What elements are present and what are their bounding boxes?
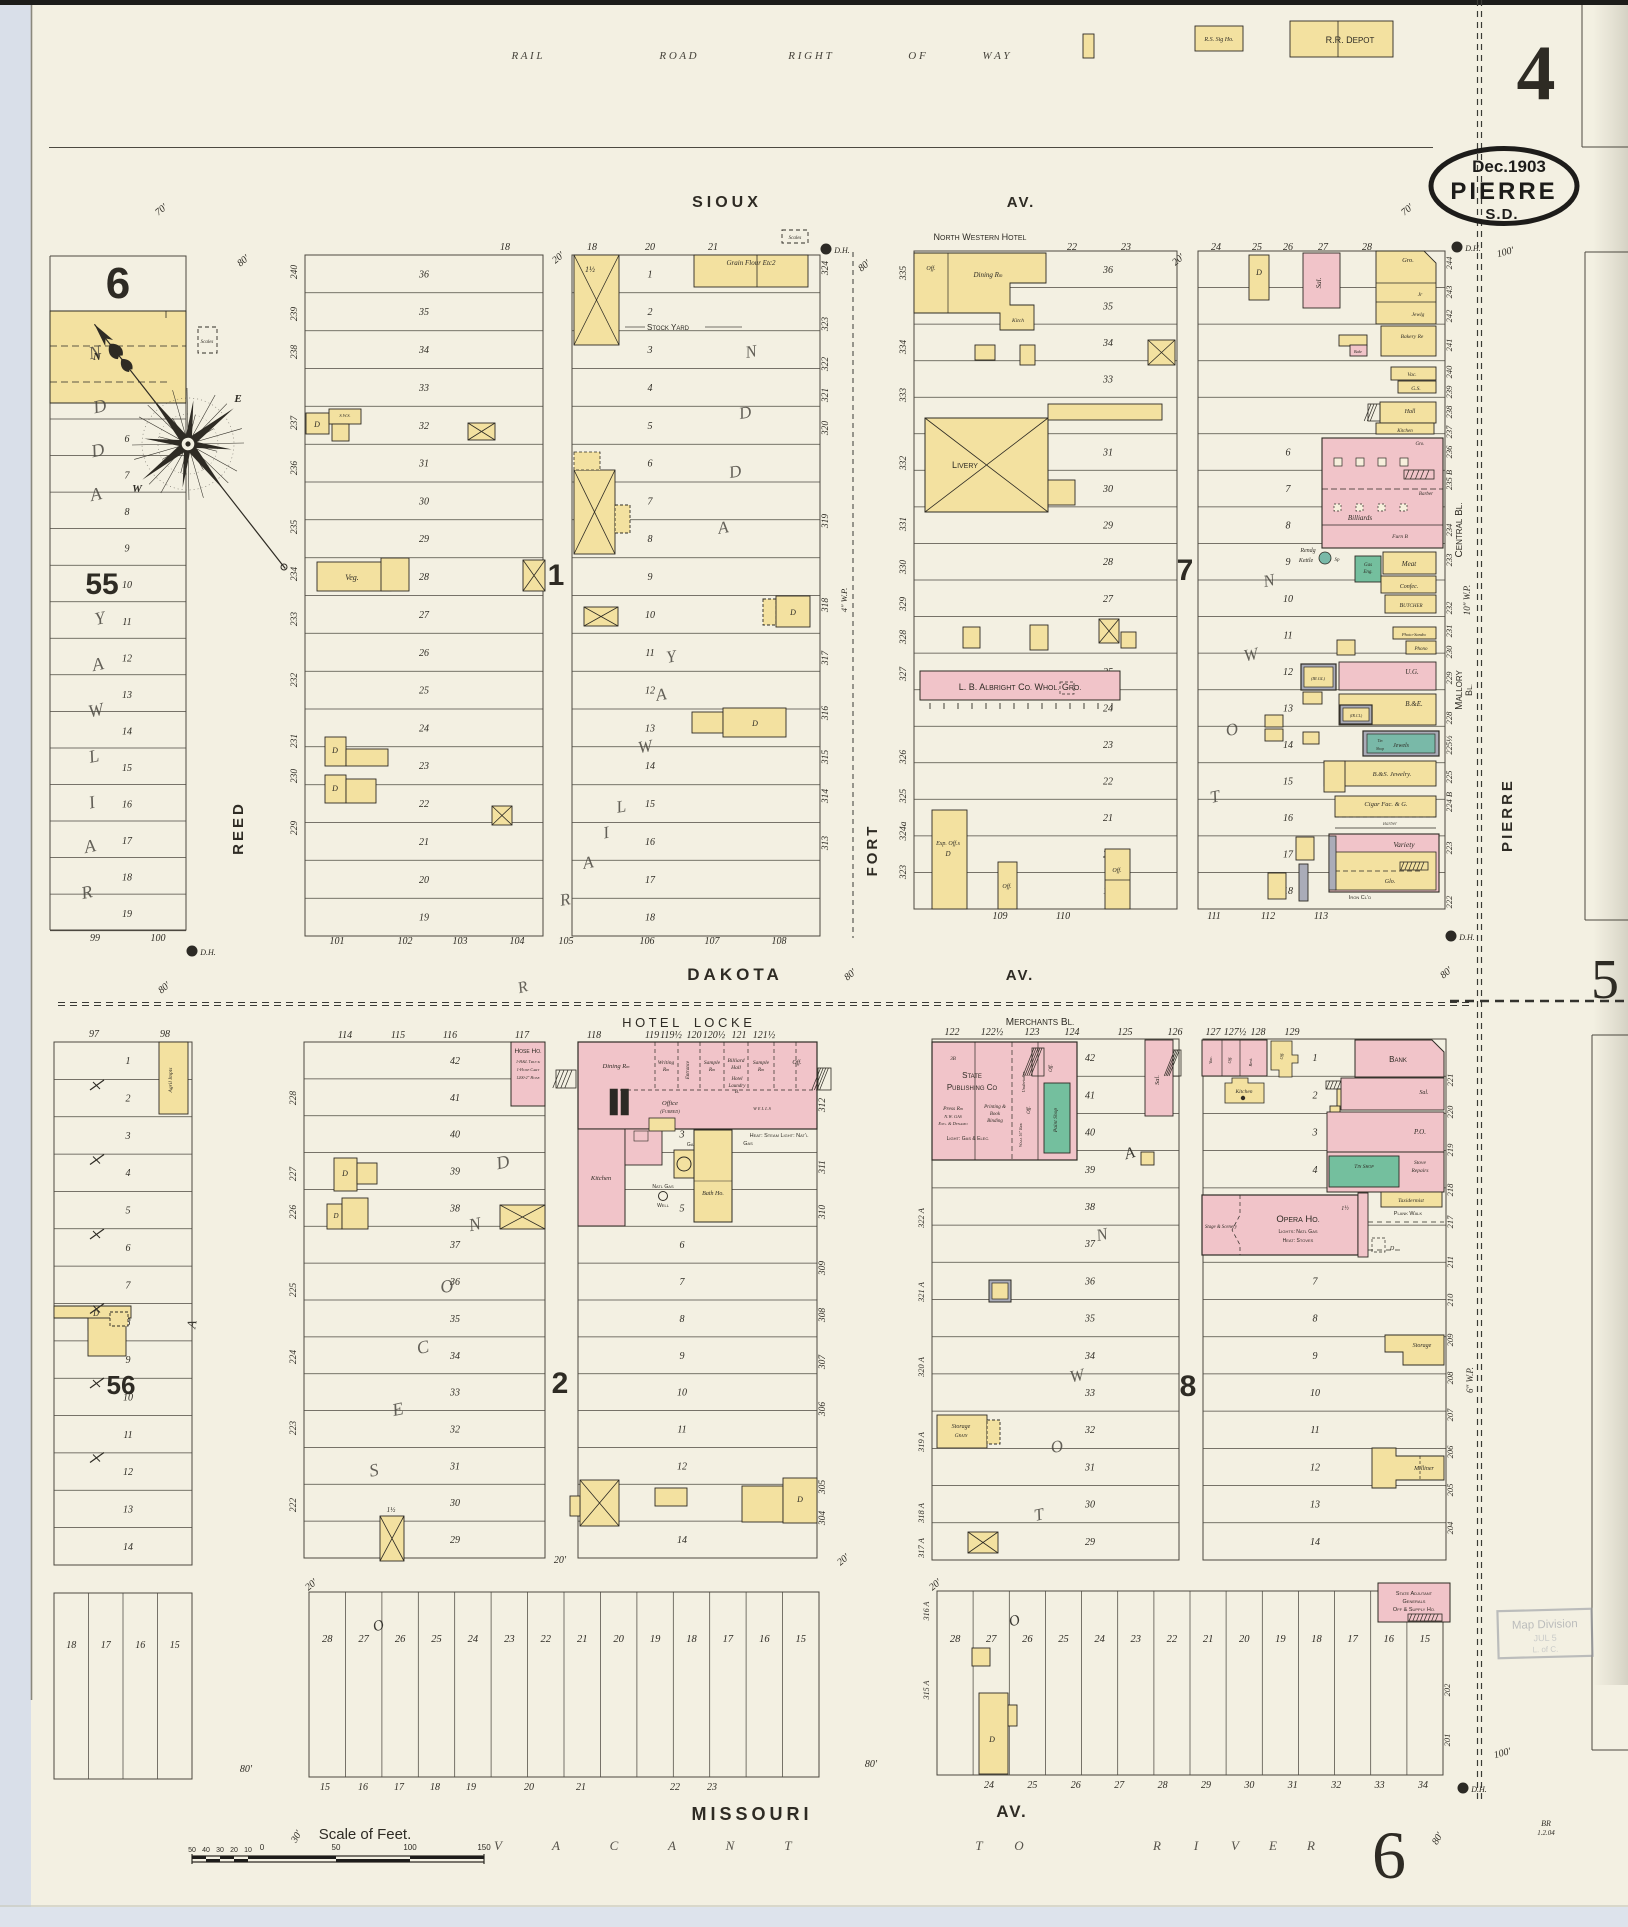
svg-text:Billiard: Billiard xyxy=(728,1058,745,1064)
svg-text:38: 38 xyxy=(449,1203,460,1214)
svg-text:16: 16 xyxy=(1384,1634,1395,1645)
svg-text:1: 1 xyxy=(648,269,653,280)
svg-text:D.H.: D.H. xyxy=(199,948,216,957)
svg-text:Writing: Writing xyxy=(658,1060,675,1066)
svg-text:29: 29 xyxy=(1201,1780,1211,1791)
svg-text:12: 12 xyxy=(123,1467,133,1478)
svg-text:306: 306 xyxy=(818,1402,828,1418)
svg-text:Furn B: Furn B xyxy=(1391,534,1408,540)
svg-text:Storage: Storage xyxy=(1413,1343,1432,1349)
svg-text:Variety: Variety xyxy=(1393,840,1415,849)
svg-text:23: 23 xyxy=(707,1782,717,1793)
svg-text:G.S.: G.S. xyxy=(1411,386,1420,392)
svg-text:W E L L S: W E L L S xyxy=(753,1106,772,1111)
svg-text:8: 8 xyxy=(1180,1370,1197,1403)
svg-text:(IR.CL): (IR.CL) xyxy=(1350,713,1363,718)
svg-text:13: 13 xyxy=(1310,1500,1320,1511)
svg-text:22: 22 xyxy=(1167,1634,1178,1645)
svg-text:223: 223 xyxy=(1444,842,1454,855)
svg-text:9: 9 xyxy=(680,1351,685,1362)
svg-text:Sample: Sample xyxy=(704,1060,721,1066)
svg-text:10: 10 xyxy=(1283,594,1293,605)
svg-text:225: 225 xyxy=(1444,771,1454,784)
svg-text:18: 18 xyxy=(500,242,510,253)
svg-text:FORT: FORT xyxy=(864,824,881,877)
svg-text:17: 17 xyxy=(101,1640,112,1651)
svg-text:15: 15 xyxy=(645,799,655,810)
svg-text:Meat: Meat xyxy=(1401,560,1417,568)
svg-text:N: N xyxy=(92,351,102,363)
svg-text:311: 311 xyxy=(818,1160,828,1175)
svg-text:125: 125 xyxy=(1118,1027,1133,1038)
svg-text:15: 15 xyxy=(122,763,132,774)
svg-text:4: 4 xyxy=(1517,29,1556,116)
svg-text:18: 18 xyxy=(430,1782,440,1793)
svg-text:21: 21 xyxy=(576,1782,586,1793)
svg-text:E: E xyxy=(1268,1838,1277,1853)
svg-text:330: 330 xyxy=(899,560,909,576)
svg-text:C: C xyxy=(610,1838,619,1853)
svg-text:20: 20 xyxy=(524,1782,534,1793)
svg-text:PIERRE: PIERRE xyxy=(1499,778,1516,852)
svg-text:99: 99 xyxy=(90,933,100,944)
svg-text:R: R xyxy=(1306,1838,1315,1853)
svg-text:106: 106 xyxy=(640,936,655,947)
svg-text:228: 228 xyxy=(289,1091,299,1106)
svg-text:30: 30 xyxy=(449,1498,460,1509)
svg-text:1: 1 xyxy=(1313,1053,1318,1064)
svg-text:16: 16 xyxy=(122,800,132,811)
svg-text:4: 4 xyxy=(648,383,653,394)
svg-text:Stove: Stove xyxy=(1414,1160,1426,1166)
svg-text:Dining Rm: Dining Rm xyxy=(602,1063,631,1070)
svg-text:232: 232 xyxy=(290,673,300,688)
svg-text:13: 13 xyxy=(123,1505,133,1516)
svg-text:228: 228 xyxy=(1444,711,1454,725)
svg-text:126: 126 xyxy=(1168,1027,1183,1038)
svg-text:Shop: Shop xyxy=(1376,746,1384,751)
svg-text:20: 20 xyxy=(230,1847,238,1854)
svg-text:Map Division: Map Division xyxy=(1512,1618,1578,1632)
svg-text:128: 128 xyxy=(1251,1027,1266,1038)
svg-text:13: 13 xyxy=(122,690,132,701)
svg-text:23: 23 xyxy=(419,761,429,772)
svg-text:B.&E.: B.&E. xyxy=(1405,700,1423,708)
svg-text:127: 127 xyxy=(1206,1027,1222,1038)
svg-text:211: 211 xyxy=(1445,1256,1455,1268)
svg-text:3: 3 xyxy=(679,1130,685,1141)
svg-text:R.S. Sig Ho.: R.S. Sig Ho. xyxy=(1203,37,1233,43)
svg-text:11: 11 xyxy=(122,617,131,628)
svg-text:204: 204 xyxy=(1445,1521,1455,1535)
svg-text:1200-2″ HOSE: 1200-2″ HOSE xyxy=(516,1075,540,1080)
svg-text:Off.: Off. xyxy=(1002,883,1011,890)
svg-text:122½: 122½ xyxy=(981,1027,1004,1038)
svg-text:Vac.: Vac. xyxy=(1407,372,1416,378)
svg-text:16: 16 xyxy=(358,1782,368,1793)
svg-text:JUL 5: JUL 5 xyxy=(1533,1633,1556,1644)
svg-text:202: 202 xyxy=(1442,1683,1452,1697)
svg-text:109: 109 xyxy=(993,911,1008,922)
svg-text:29: 29 xyxy=(1103,521,1113,532)
svg-text:335: 335 xyxy=(899,266,909,282)
svg-text:227: 227 xyxy=(289,1166,299,1182)
svg-text:217: 217 xyxy=(1445,1215,1455,1229)
svg-text:33: 33 xyxy=(449,1388,460,1399)
svg-text:Billiards: Billiards xyxy=(1348,514,1373,522)
svg-text:B.&S. Jewelry.: B.&S. Jewelry. xyxy=(1373,771,1412,778)
svg-text:244: 244 xyxy=(1444,256,1454,270)
svg-text:127½: 127½ xyxy=(1224,1027,1247,1038)
svg-text:10: 10 xyxy=(677,1388,687,1399)
svg-text:E: E xyxy=(233,393,241,405)
svg-text:40: 40 xyxy=(1085,1128,1095,1139)
svg-text:314: 314 xyxy=(821,789,831,805)
svg-text:Binding: Binding xyxy=(987,1119,1003,1124)
svg-text:29: 29 xyxy=(450,1535,460,1546)
svg-text:328: 328 xyxy=(899,630,909,646)
svg-text:R: R xyxy=(1152,1838,1161,1853)
svg-text:32: 32 xyxy=(1330,1780,1341,1791)
svg-text:21: 21 xyxy=(419,837,429,848)
svg-text:AV.: AV. xyxy=(996,1802,1028,1821)
svg-text:13: 13 xyxy=(645,723,655,734)
svg-text:Dining Rm: Dining Rm xyxy=(972,271,1002,279)
svg-text:CENTRAL BL.: CENTRAL BL. xyxy=(1454,503,1465,558)
svg-text:320 A: 320 A xyxy=(916,1356,926,1378)
svg-text:30: 30 xyxy=(1243,1780,1254,1791)
svg-text:O F: O F xyxy=(908,50,926,62)
svg-text:101: 101 xyxy=(330,936,345,947)
svg-text:19: 19 xyxy=(650,1634,661,1645)
svg-text:240: 240 xyxy=(1444,365,1454,379)
svg-text:42: 42 xyxy=(450,1056,460,1067)
svg-text:315 A: 315 A xyxy=(922,1681,931,1701)
svg-text:323: 323 xyxy=(899,865,909,881)
svg-text:225½: 225½ xyxy=(1444,735,1454,755)
svg-text:Gas: Gas xyxy=(1364,563,1372,568)
svg-text:26: 26 xyxy=(1283,242,1293,253)
svg-text:31: 31 xyxy=(1102,448,1113,459)
svg-text:8: 8 xyxy=(680,1314,685,1325)
svg-text:40: 40 xyxy=(202,1847,210,1854)
svg-text:15: 15 xyxy=(1283,777,1293,788)
svg-text:Taxidermist: Taxidermist xyxy=(1398,1198,1424,1204)
svg-text:42: 42 xyxy=(1085,1053,1095,1064)
svg-text:13: 13 xyxy=(1283,703,1293,714)
svg-text:235 B: 235 B xyxy=(1444,470,1454,490)
svg-text:11: 11 xyxy=(677,1425,686,1436)
svg-text:2: 2 xyxy=(126,1094,131,1105)
svg-text:36: 36 xyxy=(1084,1276,1095,1287)
svg-text:37: 37 xyxy=(449,1240,461,1251)
svg-text:Jewlg: Jewlg xyxy=(1412,312,1425,318)
svg-text:6: 6 xyxy=(1286,448,1291,459)
svg-text:S.D.: S.D. xyxy=(1485,206,1518,223)
svg-text:309: 309 xyxy=(818,1261,828,1277)
svg-text:Off.: Off. xyxy=(1279,1053,1284,1060)
svg-text:236: 236 xyxy=(290,461,300,476)
svg-text:29: 29 xyxy=(419,534,429,545)
svg-text:35: 35 xyxy=(418,307,429,318)
svg-text:Book: Book xyxy=(990,1112,1001,1117)
svg-text:17: 17 xyxy=(394,1782,405,1793)
svg-text:234: 234 xyxy=(1444,523,1454,537)
svg-text:14: 14 xyxy=(1283,740,1293,751)
svg-text:237: 237 xyxy=(1444,425,1454,439)
svg-text:24: 24 xyxy=(1103,703,1113,714)
svg-text:Office: Office xyxy=(662,1100,678,1107)
svg-text:28: 28 xyxy=(419,572,429,583)
svg-text:Bake: Bake xyxy=(1354,349,1362,354)
svg-text:80′: 80′ xyxy=(240,1764,253,1775)
svg-text:25: 25 xyxy=(1252,242,1262,253)
svg-text:Sp: Sp xyxy=(1335,558,1341,563)
svg-text:226: 226 xyxy=(289,1205,299,1220)
svg-text:N.W. GAS: N.W. GAS xyxy=(943,1114,961,1119)
svg-text:238: 238 xyxy=(290,345,300,360)
svg-text:17: 17 xyxy=(1347,1634,1358,1645)
svg-text:313: 313 xyxy=(821,836,831,852)
svg-text:Paint Shop: Paint Shop xyxy=(1053,1108,1059,1134)
svg-text:Storage: Storage xyxy=(952,1424,971,1430)
svg-text:34: 34 xyxy=(1417,1780,1428,1791)
svg-text:225: 225 xyxy=(289,1283,299,1298)
svg-text:34: 34 xyxy=(1084,1351,1095,1362)
svg-text:231: 231 xyxy=(290,734,300,748)
svg-text:232: 232 xyxy=(1444,601,1454,615)
svg-text:30: 30 xyxy=(1084,1500,1095,1511)
svg-text:111: 111 xyxy=(1207,911,1221,922)
svg-text:PIERRE: PIERRE xyxy=(1450,178,1557,205)
svg-text:19: 19 xyxy=(1275,1634,1286,1645)
svg-text:15: 15 xyxy=(170,1640,180,1651)
svg-text:22: 22 xyxy=(541,1634,552,1645)
svg-text:Scales: Scales xyxy=(201,340,214,345)
svg-text:L. of C.: L. of C. xyxy=(1532,1645,1558,1655)
svg-text:Kitchen: Kitchen xyxy=(1396,429,1413,434)
svg-text:21: 21 xyxy=(1103,813,1113,824)
svg-text:D: D xyxy=(944,850,950,858)
svg-text:12: 12 xyxy=(1310,1463,1320,1474)
svg-text:2: 2 xyxy=(648,307,653,318)
svg-text:239: 239 xyxy=(290,307,300,322)
svg-text:P.O.: P.O. xyxy=(1413,1128,1426,1136)
svg-text:28: 28 xyxy=(322,1634,333,1645)
svg-text:U.G.: U.G. xyxy=(1405,668,1419,676)
svg-text:38: 38 xyxy=(1084,1202,1095,1213)
svg-text:R O A D: R O A D xyxy=(658,50,696,62)
svg-text:222: 222 xyxy=(289,1498,299,1513)
svg-text:1-H&L TRUCK: 1-H&L TRUCK xyxy=(516,1059,541,1064)
svg-text:Off.: Off. xyxy=(1112,867,1121,874)
svg-text:100: 100 xyxy=(403,1843,417,1852)
svg-text:20: 20 xyxy=(419,875,429,886)
svg-text:123: 123 xyxy=(1025,1027,1040,1038)
svg-text:231: 231 xyxy=(1444,625,1454,638)
svg-text:11: 11 xyxy=(123,1430,132,1441)
svg-text:23: 23 xyxy=(1131,1634,1142,1645)
svg-text:324a: 324a xyxy=(899,821,909,841)
svg-text:3: 3 xyxy=(125,1131,131,1142)
svg-text:39: 39 xyxy=(449,1167,460,1178)
svg-text:16: 16 xyxy=(645,837,655,848)
svg-text:238: 238 xyxy=(1444,405,1454,419)
svg-text:22: 22 xyxy=(1103,777,1113,788)
svg-text:33: 33 xyxy=(1374,1780,1385,1791)
svg-text:30: 30 xyxy=(418,496,429,507)
svg-text:18: 18 xyxy=(686,1634,697,1645)
svg-text:1.2.04: 1.2.04 xyxy=(1537,1829,1555,1837)
svg-text:329: 329 xyxy=(899,597,909,613)
svg-text:26: 26 xyxy=(395,1634,406,1645)
svg-text:20: 20 xyxy=(613,1634,624,1645)
svg-text:11: 11 xyxy=(1310,1425,1319,1436)
svg-text:331: 331 xyxy=(899,517,909,532)
svg-text:1: 1 xyxy=(548,559,565,592)
svg-text:239: 239 xyxy=(1444,385,1454,399)
svg-text:6: 6 xyxy=(125,434,130,445)
svg-text:19: 19 xyxy=(122,909,132,920)
svg-text:27: 27 xyxy=(1318,242,1329,253)
svg-text:22: 22 xyxy=(1067,242,1077,253)
svg-text:119: 119 xyxy=(645,1030,659,1041)
svg-text:112: 112 xyxy=(1261,911,1275,922)
svg-text:S.W.S.: S.W.S. xyxy=(339,413,350,418)
svg-text:Phono: Phono xyxy=(1413,647,1428,652)
svg-text:D: D xyxy=(313,420,320,429)
svg-text:D: D xyxy=(331,746,338,755)
svg-text:BR: BR xyxy=(1541,1819,1551,1828)
svg-text:W: W xyxy=(132,483,143,495)
svg-text:A: A xyxy=(667,1838,676,1853)
svg-text:33: 33 xyxy=(418,383,429,394)
svg-text:230: 230 xyxy=(1444,645,1454,659)
svg-text:18: 18 xyxy=(587,242,597,253)
svg-text:Hall: Hall xyxy=(730,1065,741,1071)
svg-text:240: 240 xyxy=(290,265,300,280)
svg-text:11: 11 xyxy=(645,648,654,659)
svg-text:25: 25 xyxy=(431,1634,442,1645)
svg-text:224 B: 224 B xyxy=(1444,792,1454,812)
svg-text:32: 32 xyxy=(1084,1425,1095,1436)
svg-text:319: 319 xyxy=(821,514,831,530)
svg-text:9: 9 xyxy=(648,572,653,583)
svg-text:27: 27 xyxy=(986,1634,997,1645)
svg-text:333: 333 xyxy=(899,388,909,404)
svg-text:19: 19 xyxy=(419,913,429,924)
svg-text:322 A: 322 A xyxy=(916,1207,926,1229)
svg-text:DAKOTA: DAKOTA xyxy=(687,965,782,984)
svg-text:Kitchen: Kitchen xyxy=(590,1175,611,1182)
svg-text:17: 17 xyxy=(122,836,133,847)
svg-text:5: 5 xyxy=(648,421,653,432)
svg-text:20′: 20′ xyxy=(554,1555,567,1566)
svg-text:27: 27 xyxy=(1103,594,1114,605)
svg-text:Cigar Fac. & G.: Cigar Fac. & G. xyxy=(1364,801,1408,808)
svg-text:Sal.: Sal. xyxy=(1315,277,1323,288)
svg-text:O: O xyxy=(1014,1838,1024,1853)
svg-text:15: 15 xyxy=(320,1782,330,1793)
svg-text:2: 2 xyxy=(1313,1090,1318,1101)
svg-text:10: 10 xyxy=(244,1847,252,1854)
svg-text:23: 23 xyxy=(1103,740,1113,751)
svg-text:D.H.: D.H. xyxy=(1470,1785,1487,1794)
svg-text:304: 304 xyxy=(818,1511,828,1527)
svg-text:26: 26 xyxy=(1071,1780,1081,1791)
svg-text:315: 315 xyxy=(821,750,831,766)
svg-text:8: 8 xyxy=(1313,1314,1318,1325)
svg-text:31: 31 xyxy=(1084,1463,1095,1474)
svg-text:9: 9 xyxy=(126,1355,131,1366)
svg-text:Hotel: Hotel xyxy=(730,1077,743,1082)
svg-text:Off.: Off. xyxy=(926,265,935,272)
svg-text:24: 24 xyxy=(419,723,429,734)
svg-text:22: 22 xyxy=(670,1782,680,1793)
svg-text:6: 6 xyxy=(106,259,130,308)
svg-text:T: T xyxy=(975,1838,983,1853)
svg-text:308: 308 xyxy=(818,1308,828,1324)
svg-text:150: 150 xyxy=(477,1843,491,1852)
svg-text:229: 229 xyxy=(1444,671,1454,685)
svg-text:17: 17 xyxy=(1283,850,1294,861)
svg-text:207: 207 xyxy=(1445,1408,1455,1422)
svg-text:6: 6 xyxy=(126,1243,131,1254)
svg-text:31: 31 xyxy=(418,459,429,470)
svg-text:26: 26 xyxy=(1022,1634,1033,1645)
svg-text:Grain Flour Etc2: Grain Flour Etc2 xyxy=(727,259,776,267)
svg-text:4″ W.P.: 4″ W.P. xyxy=(839,588,849,613)
svg-text:80′: 80′ xyxy=(865,1759,878,1770)
svg-text:22: 22 xyxy=(419,799,429,810)
svg-text:116: 116 xyxy=(443,1030,457,1041)
svg-text:35: 35 xyxy=(1084,1314,1095,1325)
svg-text:Scales: Scales xyxy=(789,236,802,241)
svg-text:317 A: 317 A xyxy=(916,1537,926,1559)
svg-text:Sample: Sample xyxy=(753,1060,770,1066)
svg-text:WALL 16″ BRK: WALL 16″ BRK xyxy=(1018,1122,1023,1147)
svg-text:316: 316 xyxy=(821,706,831,722)
svg-text:D: D xyxy=(988,1735,995,1744)
svg-text:40: 40 xyxy=(450,1130,460,1141)
svg-text:10: 10 xyxy=(122,580,132,591)
svg-text:Laundry: Laundry xyxy=(728,1084,747,1089)
svg-text:B.: B. xyxy=(735,1090,739,1095)
svg-text:114: 114 xyxy=(338,1030,352,1041)
svg-text:Gro.: Gro. xyxy=(1402,257,1414,264)
svg-text:D: D xyxy=(789,608,796,617)
svg-text:18: 18 xyxy=(645,913,655,924)
svg-text:16: 16 xyxy=(1283,813,1293,824)
svg-text:234: 234 xyxy=(290,567,300,582)
svg-text:15: 15 xyxy=(1420,1634,1431,1645)
svg-text:Off.: Off. xyxy=(1027,1106,1032,1114)
svg-text:310: 310 xyxy=(818,1205,828,1221)
svg-text:N: N xyxy=(725,1838,736,1853)
svg-text:33: 33 xyxy=(1084,1388,1095,1399)
svg-text:D.H.: D.H. xyxy=(1458,933,1475,942)
svg-text:Entrance: Entrance xyxy=(686,1060,691,1080)
svg-text:31: 31 xyxy=(449,1461,460,1472)
svg-text:120½: 120½ xyxy=(703,1030,726,1041)
svg-text:A: A xyxy=(551,1838,560,1853)
svg-text:35: 35 xyxy=(1102,301,1113,312)
svg-text:233: 233 xyxy=(290,612,300,627)
svg-text:30: 30 xyxy=(1102,484,1113,495)
svg-text:322: 322 xyxy=(821,357,831,373)
svg-text:20: 20 xyxy=(1239,1634,1250,1645)
svg-text:Dec.1903: Dec.1903 xyxy=(1472,157,1546,176)
